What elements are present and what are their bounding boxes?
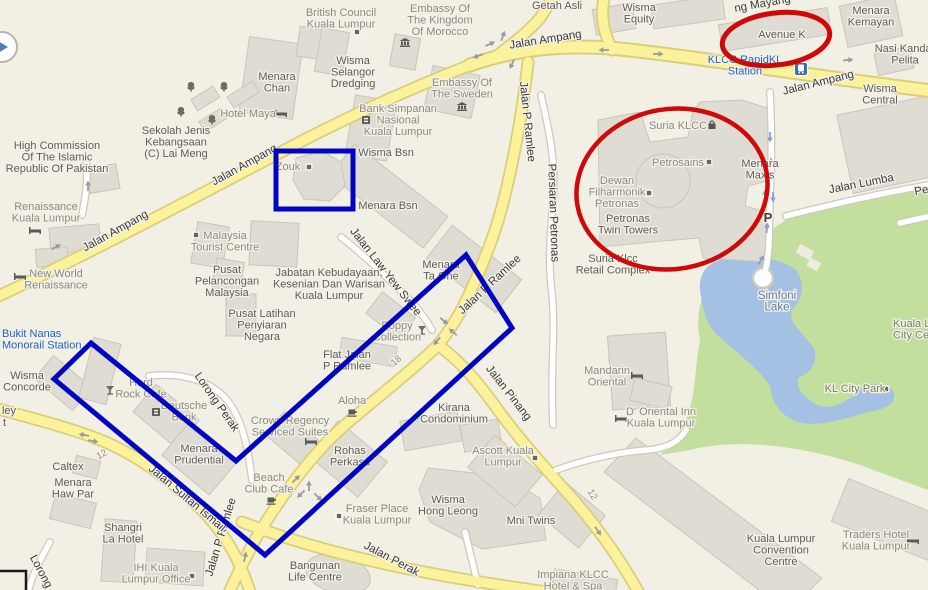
label-suria-klcc: Suria KLCC xyxy=(649,120,707,132)
label-avenue-k: Avenue K xyxy=(758,29,806,41)
label-menara-kemayan: MenaraKemayan xyxy=(848,5,894,29)
label-wisma-concorde: WismaConcorde xyxy=(3,370,51,394)
label-sekolah-lai-meng: Sekolah JenisKebangsaan(C) Lai Meng xyxy=(142,125,211,160)
label-mni-twins: Mni Twins xyxy=(507,515,556,527)
square-marker-icon xyxy=(336,513,342,519)
label-wisma-bsn: Wisma Bsn xyxy=(358,147,414,159)
label-wisma-equity: WismaEquity xyxy=(622,2,656,26)
label-getah-asli: Getah Asli xyxy=(532,0,582,12)
label-zouk: Zouk xyxy=(276,161,301,173)
label-klcc-park: Kuala LumpurCity Centre xyxy=(893,318,928,342)
label-petronas-twin-towers: PetronasTwin Towers xyxy=(598,213,659,237)
map-canvas[interactable]: High CommissionOf The IslamicRepublic Of… xyxy=(0,0,928,590)
label-impiana-klcc: Impiana KLCCHotel & Spa xyxy=(537,569,609,590)
label-wisma-central: WismaCentral xyxy=(862,83,897,107)
square-marker-icon xyxy=(193,232,199,238)
label-fraser-place: Fraser PlaceKuala Lumpur xyxy=(343,503,412,527)
square-marker-icon xyxy=(706,159,712,165)
label-parking: P xyxy=(764,210,773,225)
label-renaissance-kl: RenaissanceKuala Lumpur xyxy=(12,201,81,225)
label-menara-haw-par: MenaraHaw Par xyxy=(52,477,95,501)
label-aloha: Aloha xyxy=(338,395,367,407)
label-hotel-maya: Hotel Maya xyxy=(220,108,277,120)
label-bangunan-life-centre: BangunanLife Centre xyxy=(288,560,342,584)
bank-icon xyxy=(152,408,160,416)
label-wisma-selangor-dredging: WismaSelangorDredging xyxy=(331,55,376,90)
label-menara-maxis: MenaraMaxis xyxy=(741,158,779,182)
label-edge-partial-t: t xyxy=(3,417,6,429)
label-edge-partial-ley: ley xyxy=(2,405,17,417)
label-caltex: Caltex xyxy=(52,461,84,473)
square-marker-icon xyxy=(646,190,652,196)
bank-icon xyxy=(362,116,370,124)
square-marker-icon xyxy=(306,164,312,170)
label-shangri-la-hotel: ShangriLa Hotel xyxy=(103,522,144,546)
label-menara-bsn: Menara Bsn xyxy=(358,200,417,212)
label-british-council: British CouncilKuala Lumpur xyxy=(306,7,376,31)
label-kl-city-park: KL City Park xyxy=(825,383,886,395)
label-embassy-sweden: Embassy OfThe Sweden xyxy=(431,77,493,101)
label-traders-hotel: Traders HotelKuala Lumpur xyxy=(842,529,911,553)
label-road-pe-partial: Pe xyxy=(913,184,928,198)
label-d-oriental-inn: D' Oriental InnKuala Lumpur xyxy=(626,406,696,430)
label-new-world-renaissance: New WorldRenaissance xyxy=(24,268,88,292)
train-station-icon xyxy=(795,63,808,76)
label-embassy-morocco: Embassy OfThe KingdomOf Morocco xyxy=(407,3,472,38)
label-petrosains: Petrosains xyxy=(652,157,704,169)
label-mandarin-oriental: MandarinOriental xyxy=(584,365,630,389)
